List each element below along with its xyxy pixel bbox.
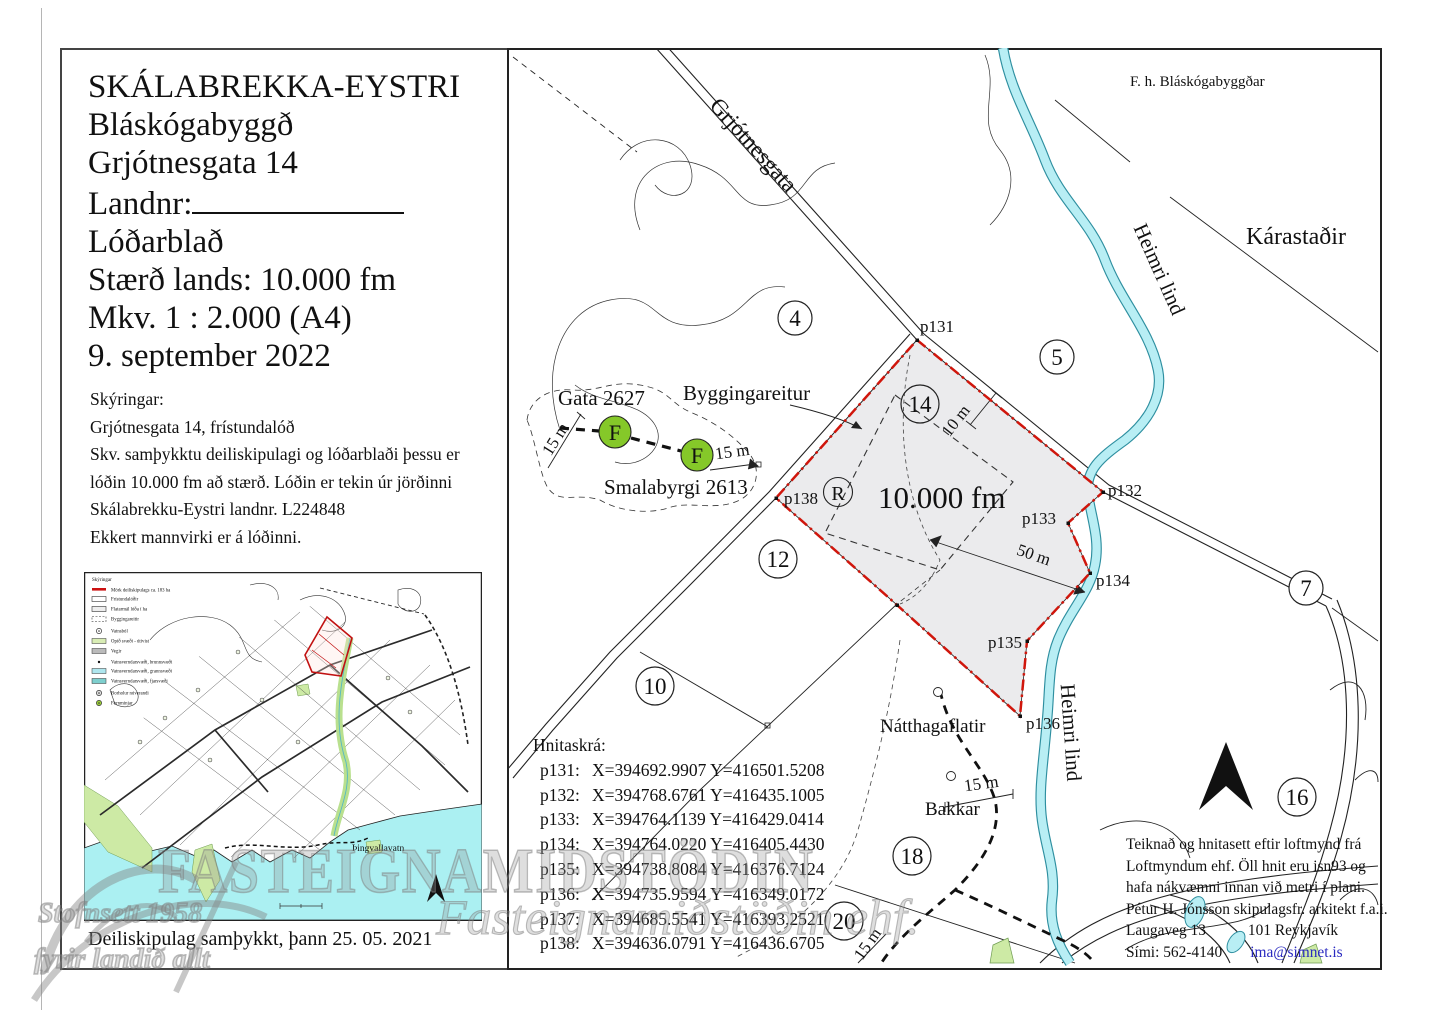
coordinate-list-heading: Hnitaskrá: <box>533 733 825 758</box>
well-ring <box>934 688 943 697</box>
r-circle-label: R <box>831 483 845 505</box>
coordinate-row: p138:X=394636.0791 Y=416436.6705 <box>533 931 825 956</box>
legend-item: Vatnsverndarsvæði, brunnsvæði <box>111 660 173 666</box>
stream-label-upper: Heimri lind <box>1129 220 1191 319</box>
karastadir-label: Kárastaðir <box>1246 224 1346 251</box>
doc-date: 9. september 2022 <box>88 337 460 375</box>
legend-item: Frístundalóðir <box>111 597 139 603</box>
attribution-line: Teiknað og hnitasett eftir loftmynd frá <box>1126 834 1388 856</box>
email-link[interactable]: ima@simnet.is <box>1250 942 1342 964</box>
coordinate-row: p134:X=394764.0220 Y=416405.4430 <box>533 832 825 857</box>
attribution-line: Loftmyndum ehf. Öll hnit eru isn93 og <box>1126 856 1388 878</box>
scan-edge-line <box>41 8 42 1010</box>
coordinate-row: p136:X=394735.9594 Y=416349.0172 <box>533 882 825 907</box>
point-label-p135: p135 <box>988 633 1022 652</box>
monument-letter: F <box>691 443 703 468</box>
legend-item: Flatarmál lóða í ha <box>111 607 148 613</box>
inset-caption: Deiliskipulag samþykkt, þann 25. 05. 202… <box>88 928 432 951</box>
bakkar-label: Bakkar <box>925 799 981 820</box>
explanation-line: Skálabrekku-Eystri landnr. L224848 <box>90 496 460 524</box>
svg-text:16: 16 <box>1286 785 1309 810</box>
doc-type: Lóðarblað <box>88 223 460 261</box>
map-scale: Mkv. 1 : 2.000 (A4) <box>88 299 460 337</box>
explanation-line: lóðin 10.000 fm að stærð. Lóðin er tekin… <box>90 469 460 497</box>
street-address: Grjótnesgata 14 <box>88 144 460 182</box>
stream-label-lower: Heimri lind <box>1056 683 1087 782</box>
explanation-line: Skv. samþykktu deiliskipulagi og lóðarbl… <box>90 441 460 469</box>
coordinate-row: p131:X=394692.9907 Y=416501.5208 <box>533 758 825 783</box>
point-label-p131: p131 <box>920 317 954 336</box>
point-label-p138: p138 <box>784 489 818 508</box>
legend-item: Vatnsból <box>111 630 128 635</box>
legend-item: Vatnsverndarsvæði, grannsvæði <box>111 669 173 675</box>
monument-letter: F <box>609 420 621 445</box>
legend-item: Borholur núverandi <box>111 692 149 697</box>
point-label-p134: p134 <box>1096 571 1131 590</box>
explanations-block: Skýringar: Grjótnesgata 14, frístundalóð… <box>90 386 460 551</box>
dim-15m-label: 15 m <box>714 440 751 464</box>
smalabyrgi-monument-label: Smalabyrgi 2613 <box>604 475 748 499</box>
point-label-p133: p133 <box>1022 509 1056 528</box>
svg-text:12: 12 <box>767 547 790 572</box>
attribution-contact-line: Sími: 562-4140ima@simnet.is <box>1126 942 1388 964</box>
plot-area-label: 10.000 fm <box>878 480 1005 515</box>
svg-text:5: 5 <box>1051 345 1063 370</box>
on-behalf-label: F. h. Bláskógabyggðar <box>1130 74 1265 91</box>
natthagaflatir-label: Nátthagaflatir <box>880 716 986 737</box>
north-arrow <box>1199 742 1253 810</box>
inset-legend-title: Skýringar <box>92 578 112 583</box>
lodarblad-sheet: SKÁLABREKKA-EYSTRI Bláskógabyggð Grjótne… <box>0 0 1440 1018</box>
landnr-label: Landnr: <box>88 186 192 222</box>
explanation-line: Grjótnesgata 14, frístundalóð <box>90 414 460 442</box>
well-ring <box>947 772 956 781</box>
point-label-p136: p136 <box>1026 714 1060 733</box>
coordinate-row: p137:X=394685.5541 Y=416393.2521 <box>533 907 825 932</box>
coordinate-row: p135:X=394738.8084 Y=416376.7124 <box>533 857 825 882</box>
attribution-address-line: Laugaveg 13101 Reykjavík <box>1126 920 1388 942</box>
coordinate-row: p133:X=394764.1139 Y=416429.0414 <box>533 807 825 832</box>
land-size: Stærð lands: 10.000 fm <box>88 261 460 299</box>
legend-item: Byggingareitir <box>111 618 139 623</box>
municipality: Bláskógabyggð <box>88 106 460 144</box>
building-envelope-label: Byggingareitur <box>683 381 810 405</box>
attribution-line: Pétur H. Jónsson skipulagsfr. arkitekt f… <box>1126 899 1388 921</box>
legend-item: Vegir <box>111 650 122 655</box>
attribution-line: hafa nákvæmni innan við metri í plani. <box>1126 877 1388 899</box>
legend-item: Opið svæði - útivist <box>111 639 150 645</box>
dim-15m-label: 15 m <box>963 772 1000 796</box>
lake-label: Þingvallavatn <box>352 844 404 854</box>
landnr-blank-field <box>192 182 404 214</box>
explanation-line: Ekkert mannvirki er á lóðinni. <box>90 524 460 552</box>
svg-text:14: 14 <box>909 392 933 417</box>
landnr-line: Landnr: <box>88 182 460 223</box>
legend-item: Mörk deiliskipulags ca. 183 ha <box>111 589 171 594</box>
svg-text:10: 10 <box>644 674 667 699</box>
explanations-heading: Skýringar: <box>90 386 460 414</box>
svg-text:7: 7 <box>1300 576 1312 601</box>
svg-text:20: 20 <box>833 909 856 934</box>
gata-monument-label: Gata 2627 <box>558 386 645 410</box>
svg-text:4: 4 <box>789 306 801 331</box>
title-block: SKÁLABREKKA-EYSTRI Bláskógabyggð Grjótne… <box>88 68 460 375</box>
svg-text:18: 18 <box>901 844 924 869</box>
dim-15m-label: 15 m <box>538 419 572 458</box>
legend-item: Vatnsverndarsvæði, fjarsvæði <box>111 679 168 685</box>
property-name: SKÁLABREKKA-EYSTRI <box>88 68 460 106</box>
point-label-p132: p132 <box>1108 481 1142 500</box>
coordinate-row: p132:X=394768.6761 Y=416435.1005 <box>533 783 825 808</box>
road-label: Grjótnesgata <box>705 93 802 197</box>
attribution-block: Teiknað og hnitasett eftir loftmynd frá … <box>1126 834 1388 964</box>
legend-item: Fornminjar <box>111 702 133 707</box>
coordinate-list: Hnitaskrá: p131:X=394692.9907 Y=416501.5… <box>533 733 825 956</box>
inset-overview-map: Þingvallavatn Skýringar Mörk deiliskipul… <box>84 572 482 921</box>
